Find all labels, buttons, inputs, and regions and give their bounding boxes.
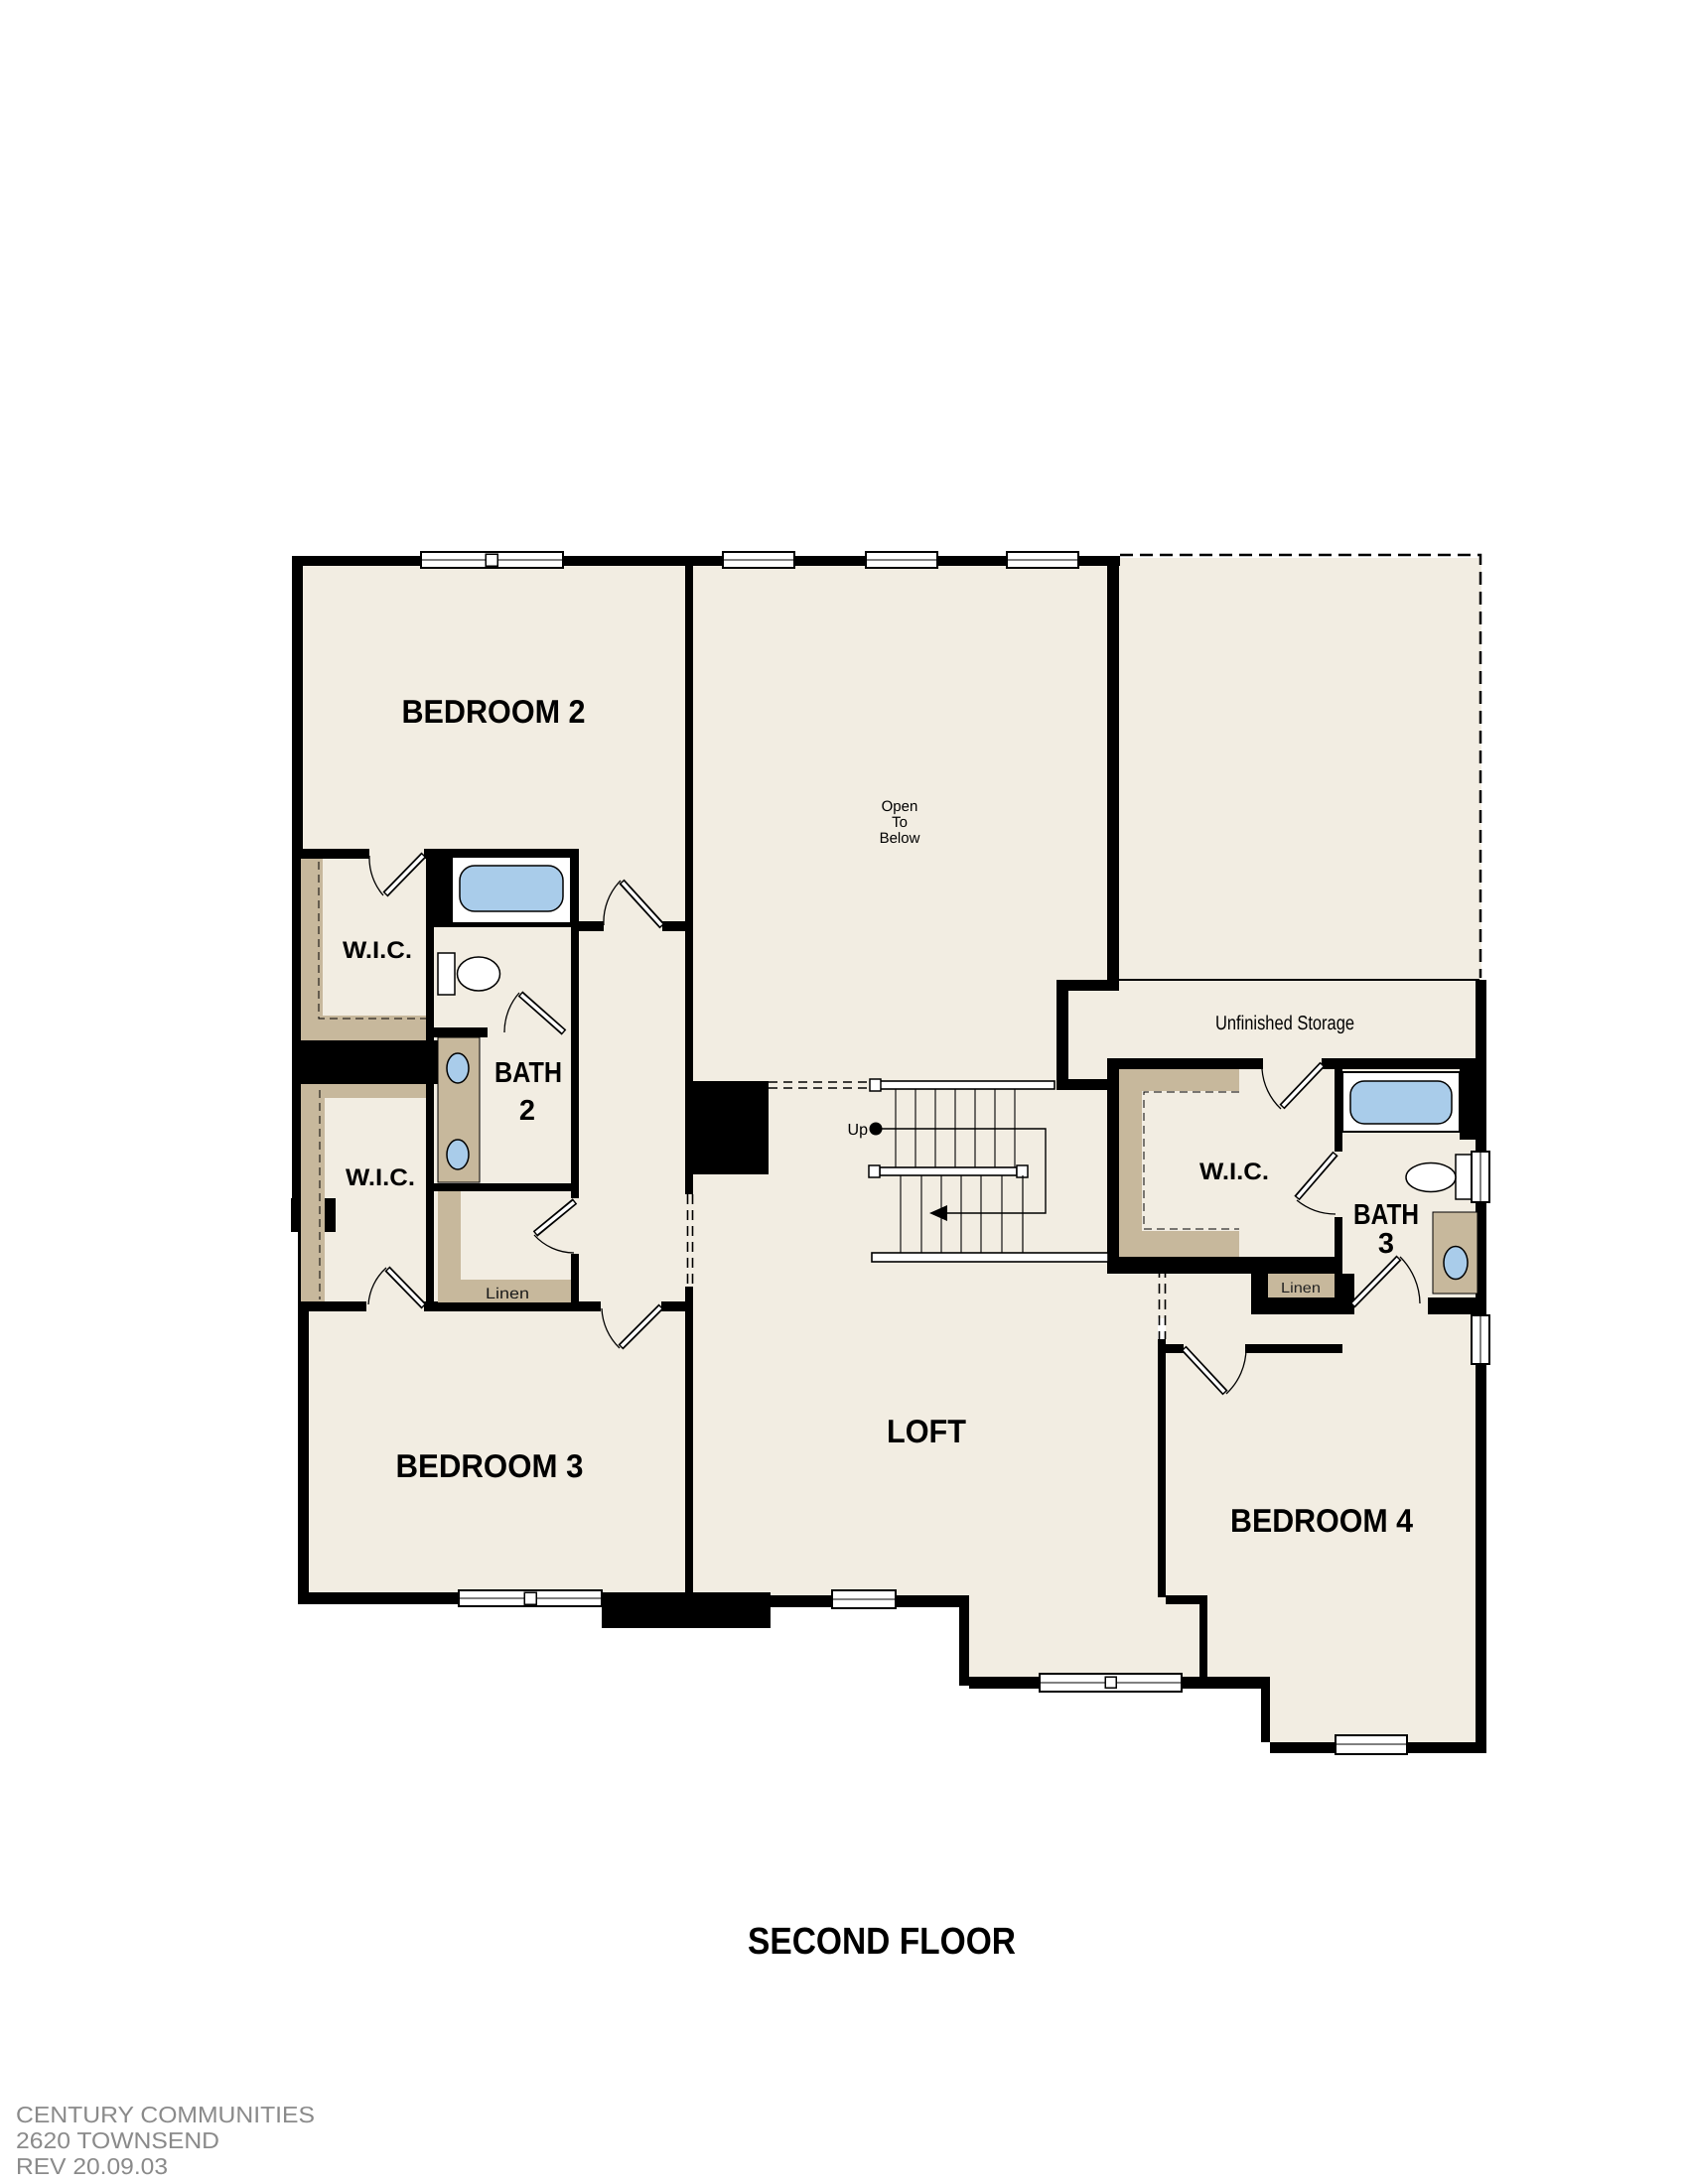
svg-text:Open: Open [882, 798, 918, 815]
svg-text:3: 3 [1378, 1228, 1394, 1260]
svg-text:SECOND FLOOR: SECOND FLOOR [748, 1921, 1016, 1963]
svg-text:2620 TOWNSEND: 2620 TOWNSEND [16, 2127, 219, 2153]
svg-text:2: 2 [519, 1095, 535, 1127]
svg-text:REV 20.09.03: REV 20.09.03 [16, 2153, 168, 2179]
svg-text:BEDROOM 2: BEDROOM 2 [402, 693, 586, 730]
svg-text:BEDROOM 4: BEDROOM 4 [1230, 1502, 1414, 1539]
svg-text:BATH: BATH [494, 1057, 562, 1089]
svg-text:CENTURY COMMUNITIES: CENTURY COMMUNITIES [16, 2102, 315, 2127]
svg-text:Linen: Linen [486, 1286, 529, 1302]
svg-text:To: To [892, 814, 908, 831]
svg-text:W.I.C.: W.I.C. [343, 937, 412, 964]
svg-text:W.I.C.: W.I.C. [1199, 1159, 1269, 1185]
svg-text:W.I.C.: W.I.C. [346, 1164, 415, 1191]
svg-text:BEDROOM 3: BEDROOM 3 [396, 1447, 584, 1484]
svg-text:Up: Up [848, 1122, 869, 1139]
svg-text:Unfinished Storage: Unfinished Storage [1215, 1013, 1354, 1034]
svg-text:Below: Below [880, 830, 920, 847]
svg-text:BATH: BATH [1353, 1199, 1419, 1231]
svg-text:LOFT: LOFT [887, 1413, 966, 1449]
svg-text:Linen: Linen [1281, 1281, 1321, 1297]
